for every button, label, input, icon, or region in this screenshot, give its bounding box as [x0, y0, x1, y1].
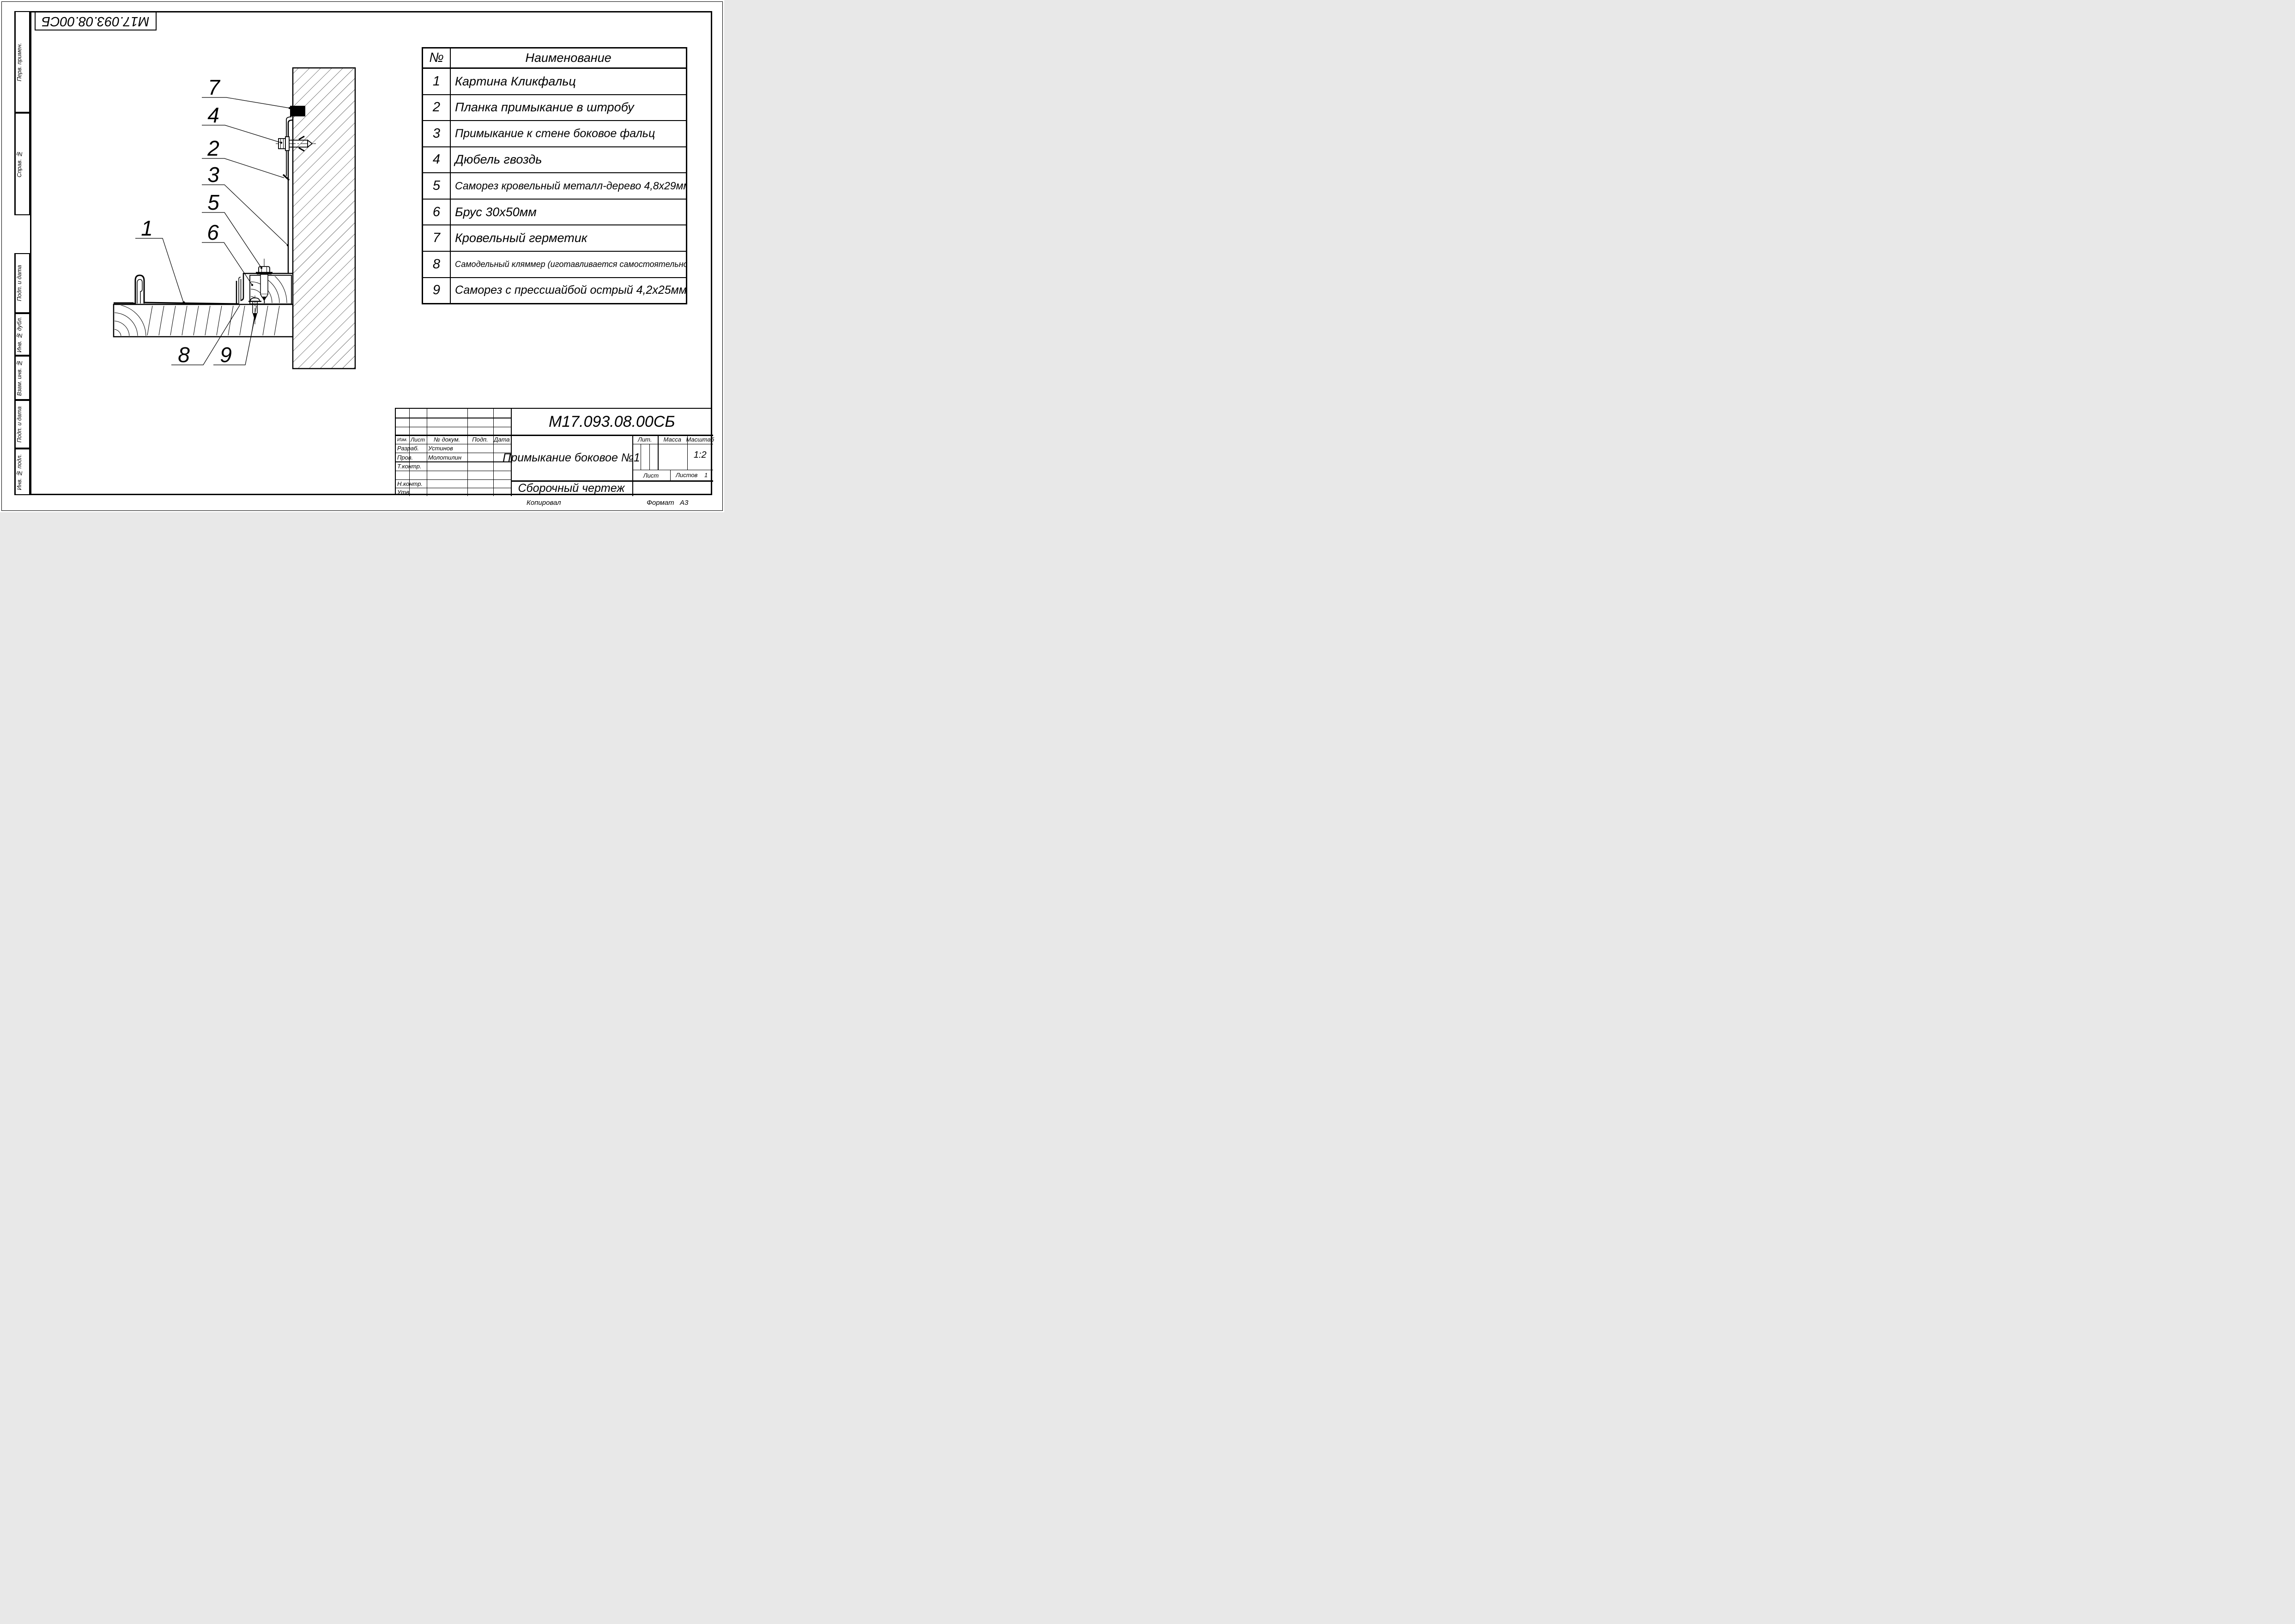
callout-2: 2	[207, 136, 219, 160]
callout-7: 7	[208, 75, 220, 99]
callout-6: 6	[207, 220, 219, 244]
callout-9: 9	[220, 343, 232, 367]
assembly-drawing: 7 4 2 3 5 6 1 8 9	[0, 0, 724, 512]
seam-clip	[239, 277, 241, 304]
callout-4: 4	[207, 103, 219, 127]
callout-1: 1	[141, 216, 153, 240]
drawing-sheet: М17.093.08.00СБ Перв. примен. Справ. № П…	[0, 0, 724, 512]
callout-5: 5	[207, 190, 219, 214]
leader-dots	[182, 107, 291, 304]
roof-sealant	[290, 106, 305, 116]
callout-8: 8	[178, 343, 190, 367]
callout-3: 3	[207, 163, 219, 187]
